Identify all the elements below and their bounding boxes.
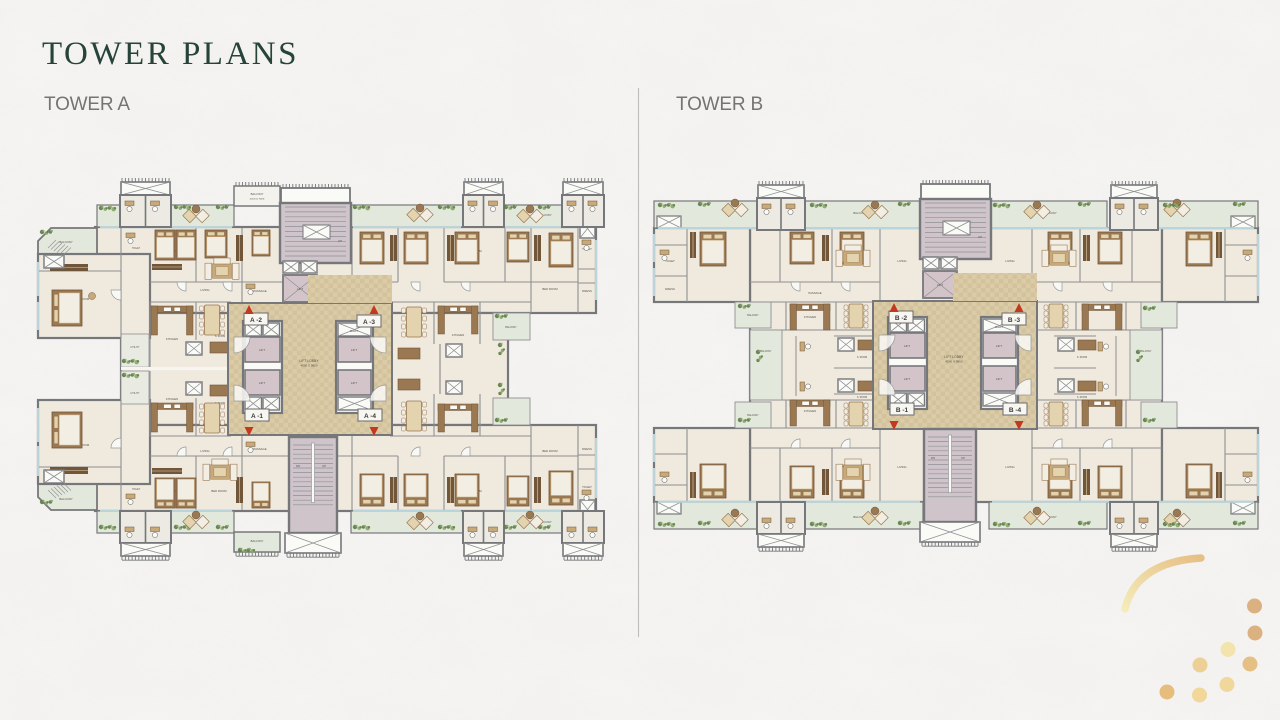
svg-text:LIFT: LIFT xyxy=(351,348,357,352)
svg-text:UP: UP xyxy=(961,456,965,460)
svg-text:LIVING: LIVING xyxy=(1005,259,1014,263)
svg-text:PASSAGE: PASSAGE xyxy=(808,291,821,295)
svg-text:DRESS: DRESS xyxy=(665,287,675,291)
svg-text:KITCHEN: KITCHEN xyxy=(804,409,816,413)
svg-text:BALCONY: BALCONY xyxy=(1141,350,1152,353)
svg-text:LIVING: LIVING xyxy=(200,449,209,453)
svg-text:TOILET: TOILET xyxy=(582,485,592,489)
svg-text:KITCHEN: KITCHEN xyxy=(804,315,816,319)
svg-text:A -3: A -3 xyxy=(363,319,375,326)
svg-text:LIVING: LIVING xyxy=(897,465,906,469)
svg-text:LIFT: LIFT xyxy=(259,381,265,385)
svg-text:LIFT LOBBY: LIFT LOBBY xyxy=(299,359,319,363)
svg-text:BALCONY: BALCONY xyxy=(251,192,264,196)
svg-text:LIFT: LIFT xyxy=(904,377,910,381)
svg-text:S. ROOM: S. ROOM xyxy=(1077,356,1087,359)
svg-text:LIFT: LIFT xyxy=(259,348,265,352)
svg-text:BALCONY: BALCONY xyxy=(747,314,759,317)
svg-text:A -2: A -2 xyxy=(250,317,262,324)
svg-text:KITCHEN: KITCHEN xyxy=(166,337,178,341)
svg-text:B -1: B -1 xyxy=(896,407,909,414)
svg-text:TOWER B: TOWER B xyxy=(676,94,763,115)
svg-text:BALCONY: BALCONY xyxy=(747,414,759,417)
svg-text:SHAFT: SHAFT xyxy=(350,329,359,333)
svg-text:LIFT: LIFT xyxy=(996,377,1002,381)
svg-text:BALCONY: BALCONY xyxy=(251,539,264,543)
svg-text:BED ROOM: BED ROOM xyxy=(542,449,558,453)
svg-text:A -4: A -4 xyxy=(364,413,376,420)
svg-text:LIVING: LIVING xyxy=(1005,465,1014,469)
svg-text:UP: UP xyxy=(322,464,326,468)
svg-text:DN: DN xyxy=(931,456,935,460)
svg-text:4500 X 9850: 4500 X 9850 xyxy=(945,359,962,363)
svg-text:SHAFT: SHAFT xyxy=(995,325,1004,329)
svg-text:LIFT LOBBY: LIFT LOBBY xyxy=(944,355,964,359)
svg-text:S. ROOM: S. ROOM xyxy=(857,356,867,359)
svg-text:UP: UP xyxy=(978,235,982,239)
svg-text:LIFT: LIFT xyxy=(904,344,910,348)
svg-text:TOWER A: TOWER A xyxy=(44,94,130,115)
svg-text:TOWER PLANS: TOWER PLANS xyxy=(42,36,299,72)
svg-text:B -2: B -2 xyxy=(895,315,908,322)
svg-text:LIFT: LIFT xyxy=(937,283,943,287)
svg-text:BED ROOM: BED ROOM xyxy=(211,489,227,493)
svg-text:TOILET: TOILET xyxy=(132,489,141,491)
svg-text:KITCHEN: KITCHEN xyxy=(452,333,464,337)
svg-text:LIVING: LIVING xyxy=(897,259,906,263)
svg-text:B -3: B -3 xyxy=(1008,317,1021,324)
svg-text:DRESS: DRESS xyxy=(582,289,592,293)
svg-text:2050mm WIDE: 2050mm WIDE xyxy=(250,199,265,201)
svg-text:LIFT: LIFT xyxy=(297,287,303,291)
svg-text:A -1: A -1 xyxy=(251,413,263,420)
svg-text:LIFT: LIFT xyxy=(996,344,1002,348)
svg-text:BALCONY: BALCONY xyxy=(761,350,772,353)
svg-text:UTILITY: UTILITY xyxy=(131,346,140,349)
svg-text:PASSAGE: PASSAGE xyxy=(253,447,266,451)
svg-text:DN: DN xyxy=(296,464,300,468)
svg-text:UTILITY: UTILITY xyxy=(131,392,140,395)
svg-text:BED ROOM: BED ROOM xyxy=(542,287,558,291)
svg-text:B -4: B -4 xyxy=(1009,407,1022,414)
svg-text:S. ROOM: S. ROOM xyxy=(215,335,225,338)
svg-text:UP: UP xyxy=(338,239,342,243)
svg-text:S. ROOM: S. ROOM xyxy=(857,396,867,399)
svg-text:PASSAGE: PASSAGE xyxy=(253,289,266,293)
svg-text:S. ROOM: S. ROOM xyxy=(1077,396,1087,399)
svg-text:TOILET: TOILET xyxy=(132,248,141,250)
svg-text:BALCONY: BALCONY xyxy=(59,497,73,501)
svg-text:DRESS: DRESS xyxy=(582,447,592,451)
svg-text:BALCONY: BALCONY xyxy=(505,326,517,329)
svg-text:4500 X 9850: 4500 X 9850 xyxy=(300,363,317,367)
svg-text:LIVING: LIVING xyxy=(200,288,209,292)
svg-text:KITCHEN: KITCHEN xyxy=(166,397,178,401)
svg-text:LIFT: LIFT xyxy=(351,381,357,385)
